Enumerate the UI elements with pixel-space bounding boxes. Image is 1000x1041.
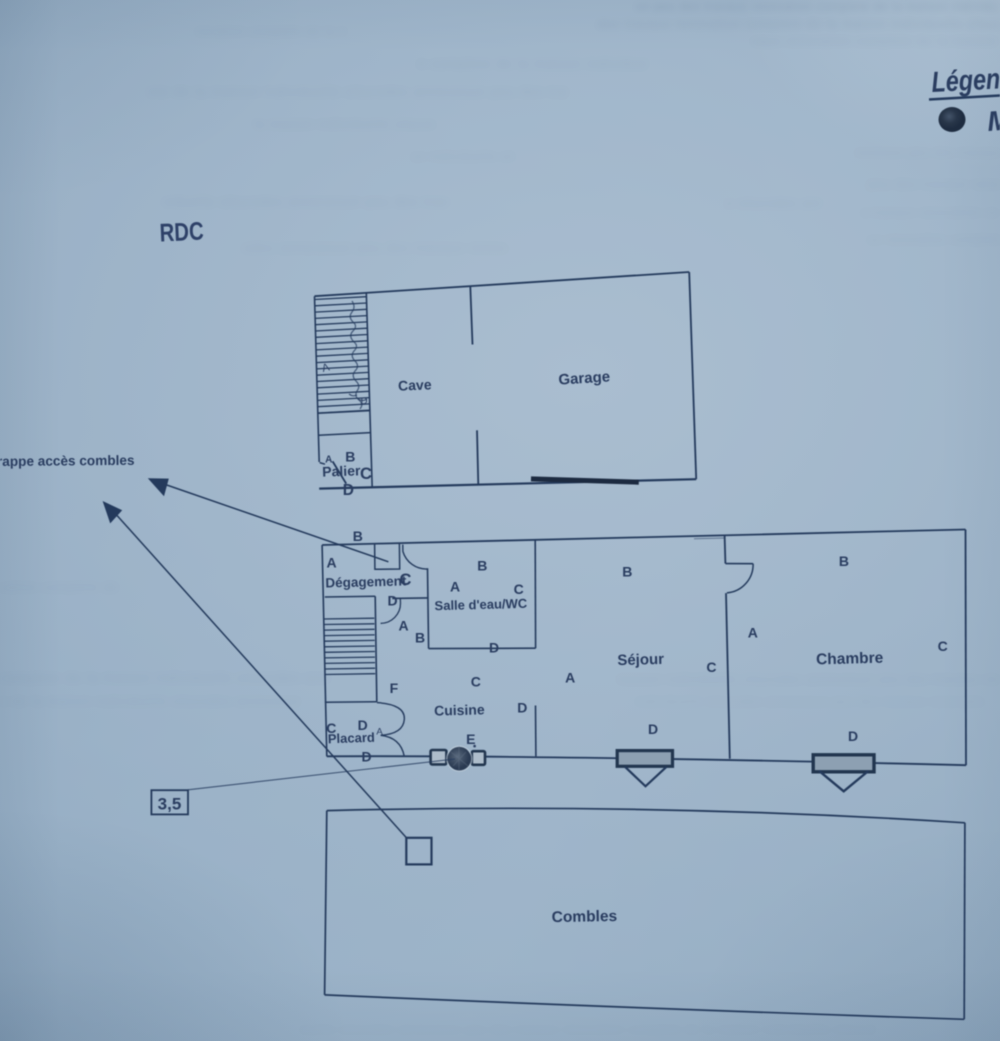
svg-text:D: D — [361, 396, 368, 407]
svg-text:C: C — [514, 581, 524, 597]
svg-text:B: B — [622, 563, 632, 579]
svg-text:A: A — [565, 669, 575, 685]
svg-text:D: D — [358, 717, 368, 733]
svg-text:A: A — [326, 554, 336, 570]
svg-text:Garage: Garage — [558, 368, 611, 388]
svg-text:D: D — [343, 482, 354, 499]
svg-text:B: B — [415, 629, 425, 645]
svg-text:B: B — [353, 528, 363, 544]
svg-text:C: C — [326, 720, 336, 736]
svg-text:D: D — [648, 721, 658, 737]
svg-text:C: C — [360, 465, 372, 483]
svg-text:A: A — [748, 624, 758, 640]
svg-text:Salle d'eau/WC: Salle d'eau/WC — [434, 596, 528, 613]
svg-text:B: B — [839, 553, 849, 569]
svg-text:Combles: Combles — [552, 908, 618, 926]
svg-text:D: D — [848, 728, 858, 744]
svg-text:RDC: RDC — [159, 218, 204, 248]
svg-text:F: F — [390, 680, 399, 696]
svg-text:Dégagement: Dégagement — [325, 573, 407, 590]
svg-text:C: C — [938, 638, 948, 654]
svg-text:C: C — [471, 673, 481, 689]
svg-text:D: D — [361, 748, 371, 764]
svg-text:D: D — [517, 700, 527, 716]
svg-text:C: C — [400, 571, 412, 589]
svg-text:Légende: Légende — [931, 62, 1000, 99]
svg-text:A: A — [450, 578, 460, 594]
svg-text:D: D — [387, 592, 397, 608]
svg-text:C: C — [706, 659, 716, 675]
svg-text:B: B — [477, 557, 487, 573]
svg-text:A: A — [398, 617, 408, 633]
svg-text:E: E — [466, 731, 475, 747]
svg-text:M: M — [986, 104, 1000, 137]
svg-text:Cave: Cave — [398, 376, 432, 393]
svg-text:Palier: Palier — [322, 462, 361, 479]
svg-text:D: D — [489, 639, 499, 655]
svg-text:Cuisine: Cuisine — [434, 701, 485, 718]
svg-text:rappe accès combles: rappe accès combles — [0, 453, 135, 469]
svg-text:3,5: 3,5 — [158, 795, 182, 814]
svg-text:Séjour: Séjour — [617, 651, 664, 669]
svg-text:A: A — [376, 727, 383, 738]
svg-text:Chambre: Chambre — [816, 650, 884, 669]
